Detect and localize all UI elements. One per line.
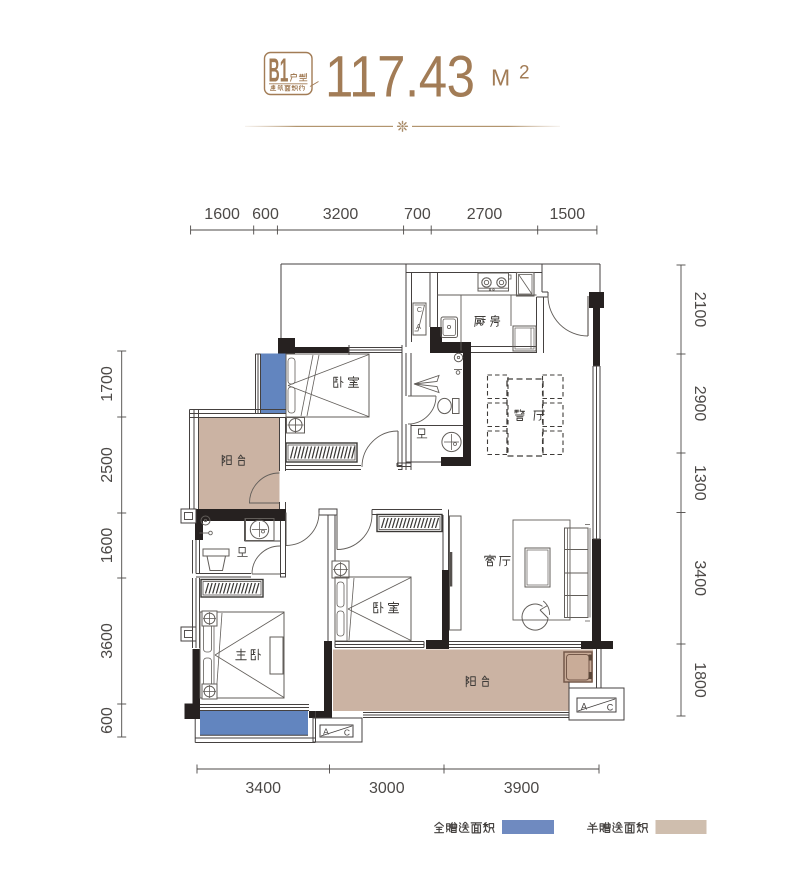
svg-text:A: A: [323, 727, 329, 737]
svg-text:117.43: 117.43: [325, 43, 475, 109]
svg-text:3400: 3400: [245, 780, 281, 797]
svg-text:A: A: [416, 322, 421, 331]
svg-text:1600: 1600: [204, 206, 240, 223]
svg-text:C: C: [607, 703, 614, 713]
svg-text:3200: 3200: [323, 206, 359, 223]
svg-text:2100: 2100: [691, 292, 708, 328]
svg-text:1500: 1500: [550, 206, 586, 223]
svg-text:C: C: [344, 728, 350, 738]
svg-text:600: 600: [252, 206, 279, 223]
svg-text:3600: 3600: [99, 623, 116, 659]
svg-text:3400: 3400: [691, 560, 708, 596]
svg-text:700: 700: [404, 206, 431, 223]
svg-text:1800: 1800: [691, 662, 708, 698]
svg-text:2700: 2700: [467, 206, 503, 223]
svg-text:1300: 1300: [691, 465, 708, 501]
svg-text:3000: 3000: [369, 780, 405, 797]
svg-text:2500: 2500: [99, 447, 116, 483]
svg-text:M: M: [491, 65, 510, 91]
svg-text:2900: 2900: [691, 386, 708, 422]
svg-text:3900: 3900: [504, 780, 540, 797]
svg-text:A: A: [581, 702, 587, 712]
svg-text:600: 600: [99, 707, 116, 734]
svg-text:1600: 1600: [99, 528, 116, 564]
svg-text:2: 2: [519, 63, 530, 84]
svg-text:C: C: [417, 305, 423, 314]
svg-text:1700: 1700: [99, 366, 116, 402]
